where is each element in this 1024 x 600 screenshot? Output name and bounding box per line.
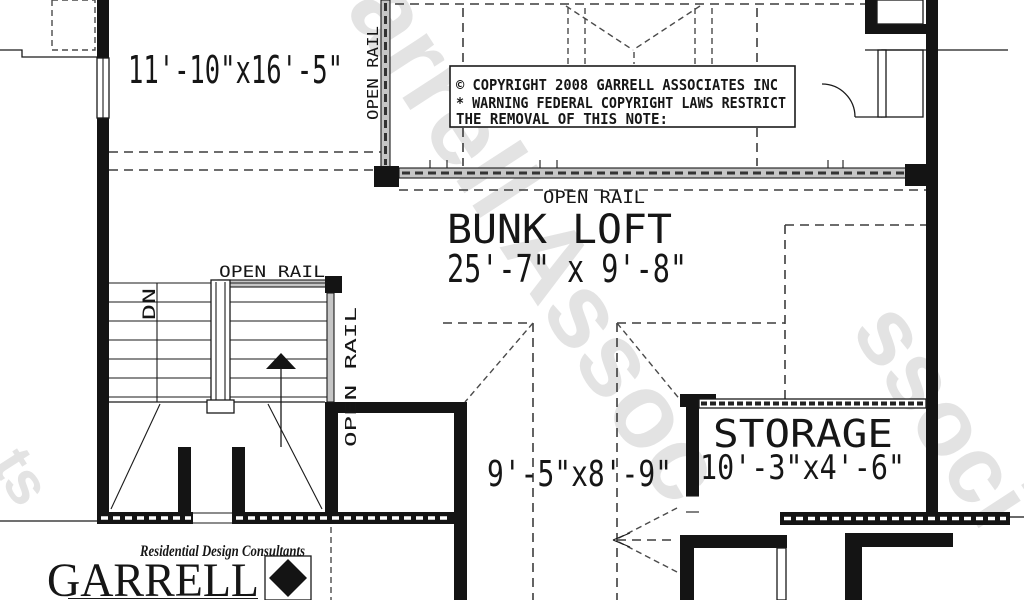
door-jamb-left xyxy=(178,447,191,512)
right-exterior-wall xyxy=(926,0,938,525)
stair-open-rail-right xyxy=(327,293,334,402)
storage-dimension: 10'-3"x4'-6" xyxy=(700,448,905,488)
copyright-line3: THE REMOVAL OF THIS NOTE: xyxy=(456,110,668,128)
open-rail-label-vertical-top: OPEN RAIL xyxy=(364,26,382,120)
stair-stringer xyxy=(211,280,230,402)
floor-plan-page: Garrell Assoc ssoci ts xyxy=(0,0,1024,600)
rail-post xyxy=(325,276,342,293)
open-rail-label-stairs: OPEN RAIL xyxy=(219,262,325,281)
center-dimension: 9'-5"x8'-9" xyxy=(487,454,672,495)
open-rail-label-loft: OPEN RAIL xyxy=(543,188,645,208)
door-swing-arc xyxy=(822,84,855,117)
open-rail-label-vertical-stairs: OPEN RAIL xyxy=(342,307,360,447)
dormer-v-right xyxy=(633,6,700,50)
door-leaf xyxy=(878,50,886,117)
bunk-loft-dimension: 25'-7" x 9'-8" xyxy=(447,247,687,291)
copyright-note: © COPYRIGHT 2008 GARRELL ASSOCIATES INC … xyxy=(450,66,795,128)
logo-brand: GARRELL xyxy=(47,554,259,600)
left-exterior-wall xyxy=(97,118,109,515)
ceiling-arrow-annotation xyxy=(613,508,677,572)
copyright-line1: © COPYRIGHT 2008 GARRELL ASSOCIATES INC xyxy=(456,76,778,94)
rail-post xyxy=(374,166,399,187)
storage-left-wall xyxy=(686,394,699,496)
stair-newel xyxy=(207,400,234,413)
chimney-outline xyxy=(52,0,95,50)
center-room-wall xyxy=(454,402,467,600)
rail-post xyxy=(905,164,928,186)
stairs-down-label: DN xyxy=(140,288,160,320)
left-room-dimension: 11'-10"x16'-5" xyxy=(128,48,343,92)
dormer-v-left xyxy=(566,6,633,50)
garrell-logo: Residential Design Consultants GARRELL xyxy=(47,543,311,600)
stair-up-arrow xyxy=(266,353,296,447)
door-jamb-right xyxy=(232,447,245,512)
watermark-fragment-left: ts xyxy=(0,436,64,517)
floor-plan-canvas: Garrell Assoc ssoci ts xyxy=(0,0,1024,600)
